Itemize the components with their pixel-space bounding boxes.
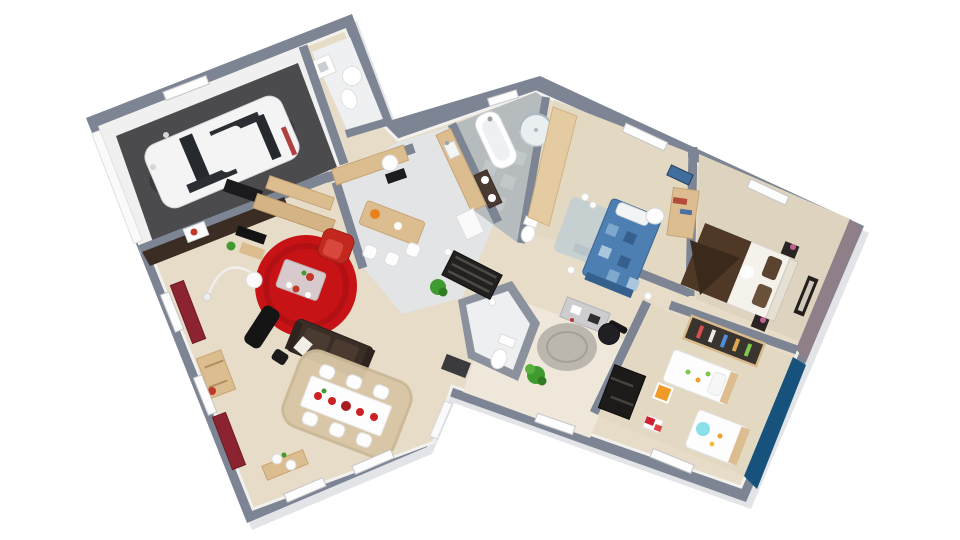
kids-bed2-cushion [696,422,710,436]
laundry-toilet-tank [343,67,362,86]
kitchen-hood [382,155,398,171]
kids-bed2-dot-2 [718,434,723,439]
table-red-item-1 [306,273,314,281]
bedroom1-light-1 [582,194,589,201]
island-orange-plate [370,209,380,219]
dining-plate-1 [314,392,322,400]
bathtub-faucet [488,117,493,122]
lamp-base [203,293,211,301]
master-lamp-2 [760,317,766,323]
dining-plate-3 [356,408,364,416]
hall-light-3 [568,267,575,274]
bath-sink-1 [481,176,489,184]
bath-sink-2 [488,194,496,202]
floorplan-canvas [0,0,960,540]
bedroom1-light-2 [590,202,596,208]
shower-drain [534,128,538,132]
kids-bed1-dot-2 [696,378,701,383]
dining-green-sprig [322,389,327,394]
dining-plate-2 [328,397,336,405]
table-white-item-2 [305,292,311,298]
bedroom1-chair [646,208,664,224]
kitchen-plant-leaf-2 [439,288,448,297]
master-lamp-1 [790,244,796,250]
hall-plant-leaf-3 [538,377,547,386]
kitchen-faucet [445,141,449,145]
island-white-dish [394,222,402,230]
wall-art-red-motif [191,229,198,236]
hall-plant-leaf-2 [525,364,535,374]
office-red-item [570,318,574,322]
hall-light-1 [445,249,452,256]
table-red-item-2 [293,286,300,293]
console-twig [282,453,287,458]
dining-vase [341,401,351,411]
kids-bed1-dot-3 [706,372,711,377]
bench-plant [227,242,236,251]
car-headlight-1 [150,164,156,170]
master-round-cushion [740,265,754,279]
table-green-item [302,271,307,276]
console-vase-2 [286,460,296,470]
hall-light-4 [645,293,652,300]
kids-bed1-dot-1 [686,370,691,375]
car-headlight-2 [163,132,169,138]
table-white-item-1 [286,282,292,288]
console-vase-1 [272,454,282,464]
floorplan-viewport [0,0,960,540]
kids-bed2-dot-1 [710,442,715,447]
office-chair-seat [599,324,620,345]
dining-plate-4 [370,413,378,421]
lamp-shade [246,272,262,288]
